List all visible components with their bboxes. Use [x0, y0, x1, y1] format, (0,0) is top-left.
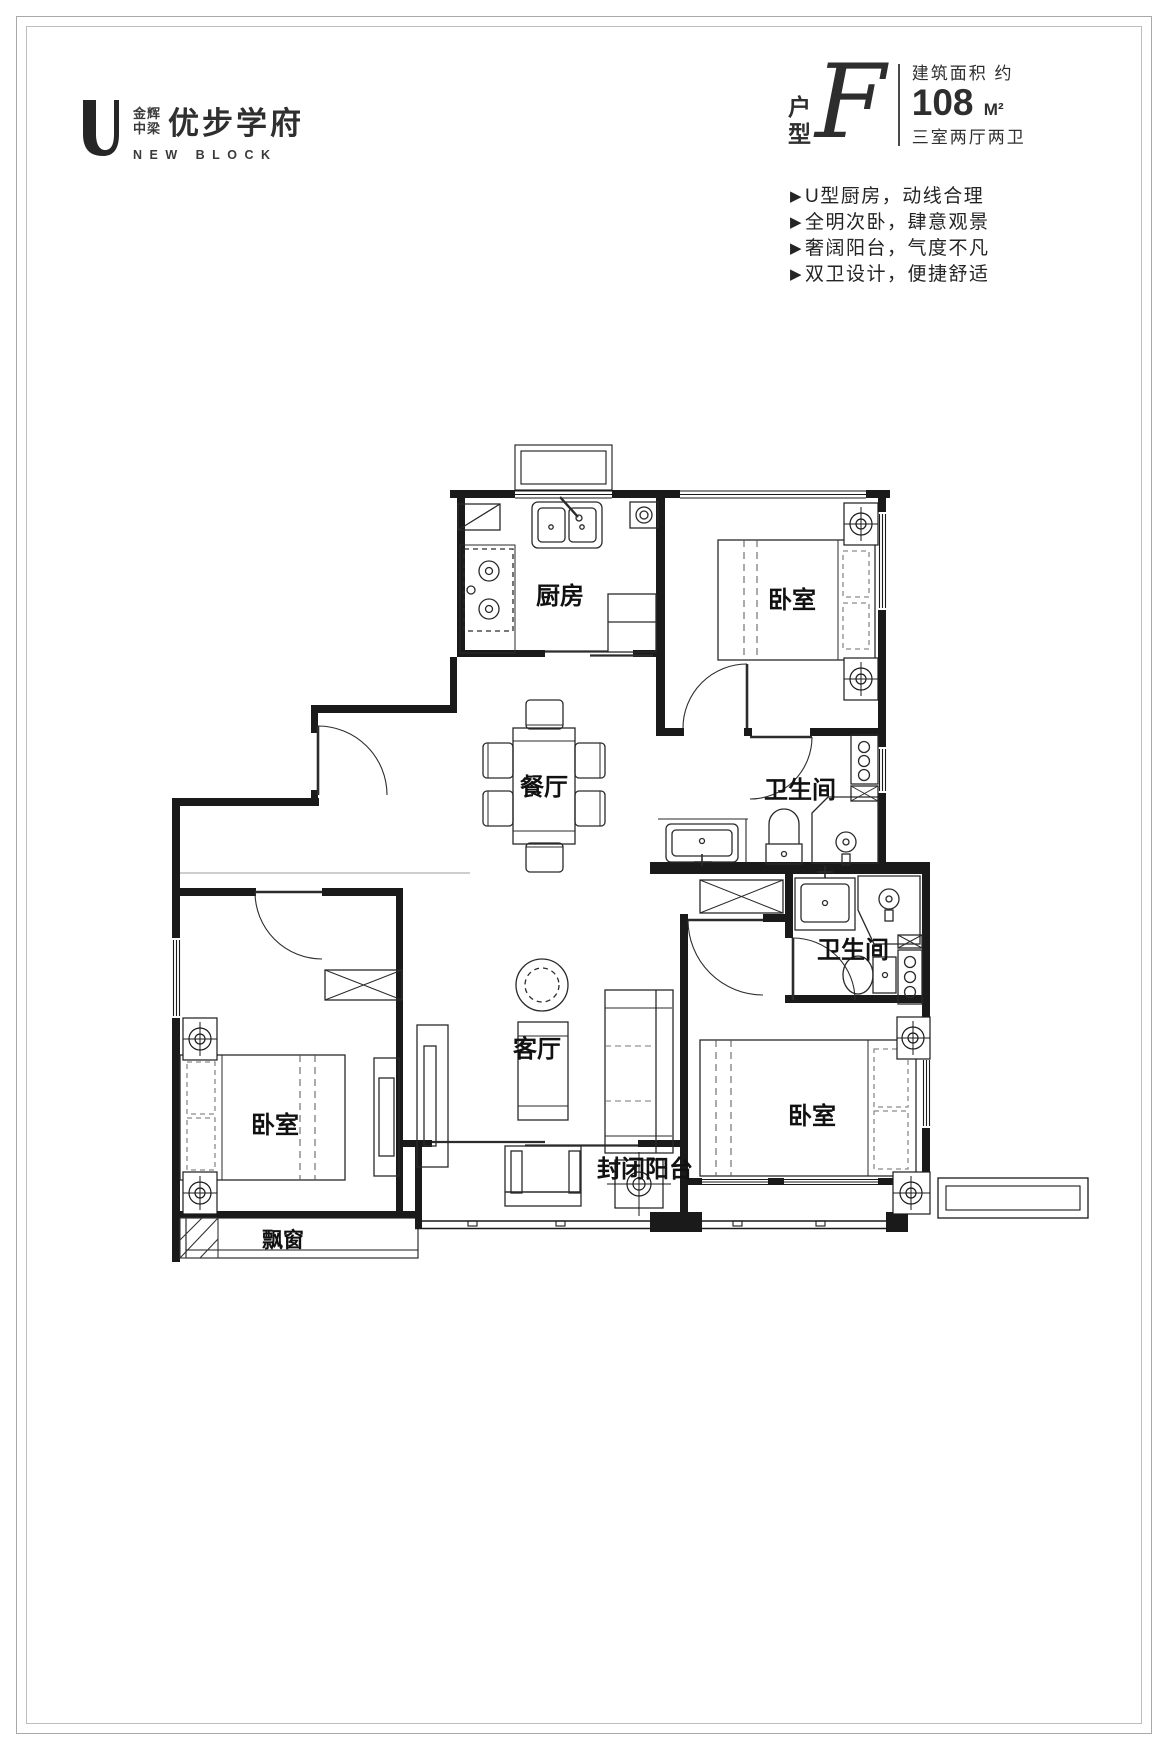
room-label-bath-bottom: 卫生间 [817, 937, 889, 964]
wardrobe [325, 970, 402, 1000]
washbasin [658, 819, 748, 866]
room-label-bedroom-top: 卧室 [768, 586, 816, 614]
room-label-dining: 餐厅 [520, 774, 568, 801]
room-label-living: 客厅 [513, 1035, 561, 1063]
pier [183, 1172, 217, 1214]
shower [812, 797, 878, 865]
room-label-bath-top: 卫生间 [764, 777, 836, 804]
kitchen-fixtures [458, 497, 658, 653]
shower [858, 876, 920, 944]
fridge [608, 594, 656, 652]
armchair [505, 1146, 581, 1206]
room-label-bay-window: 飘窗 [262, 1228, 304, 1252]
floor-plan: 厨房 卧室 餐厅 卫生间 卫生间 客厅 卧室 卧室 飘窗 封闭阳台 [0, 0, 1168, 1750]
duct-shaft-small [898, 935, 922, 948]
pier [844, 658, 878, 700]
duct-shaft [851, 786, 878, 801]
pier [183, 1018, 217, 1060]
balcony-slider [432, 1142, 638, 1146]
entry-door [318, 726, 387, 795]
pier [844, 503, 878, 545]
bedroom-left-furniture [180, 970, 402, 1180]
stove [460, 545, 515, 653]
water-heater [630, 502, 658, 528]
pier [893, 1172, 930, 1214]
toilet [766, 809, 802, 864]
sofa [605, 990, 673, 1153]
brochure-page: { "brand": { "logo_mark": "U", "logo_cn_… [0, 0, 1168, 1750]
bath-bottom-fixtures [700, 866, 922, 1004]
room-label-balcony: 封闭阳台 [597, 1155, 693, 1183]
tv-stand [374, 1058, 399, 1176]
room-label-bedroom-right: 卧室 [788, 1102, 836, 1130]
washbasin [795, 866, 855, 930]
shelf [851, 735, 878, 784]
bedroom-top-door [683, 664, 747, 728]
sink [532, 497, 602, 548]
duct-shaft [700, 880, 783, 913]
room-label-bedroom-left: 卧室 [251, 1111, 299, 1139]
round-rug [516, 959, 568, 1011]
bedroom-left-door [255, 892, 322, 959]
room-label-kitchen: 厨房 [536, 582, 584, 610]
pier [897, 1017, 930, 1059]
bedroom-right-door [688, 920, 763, 995]
